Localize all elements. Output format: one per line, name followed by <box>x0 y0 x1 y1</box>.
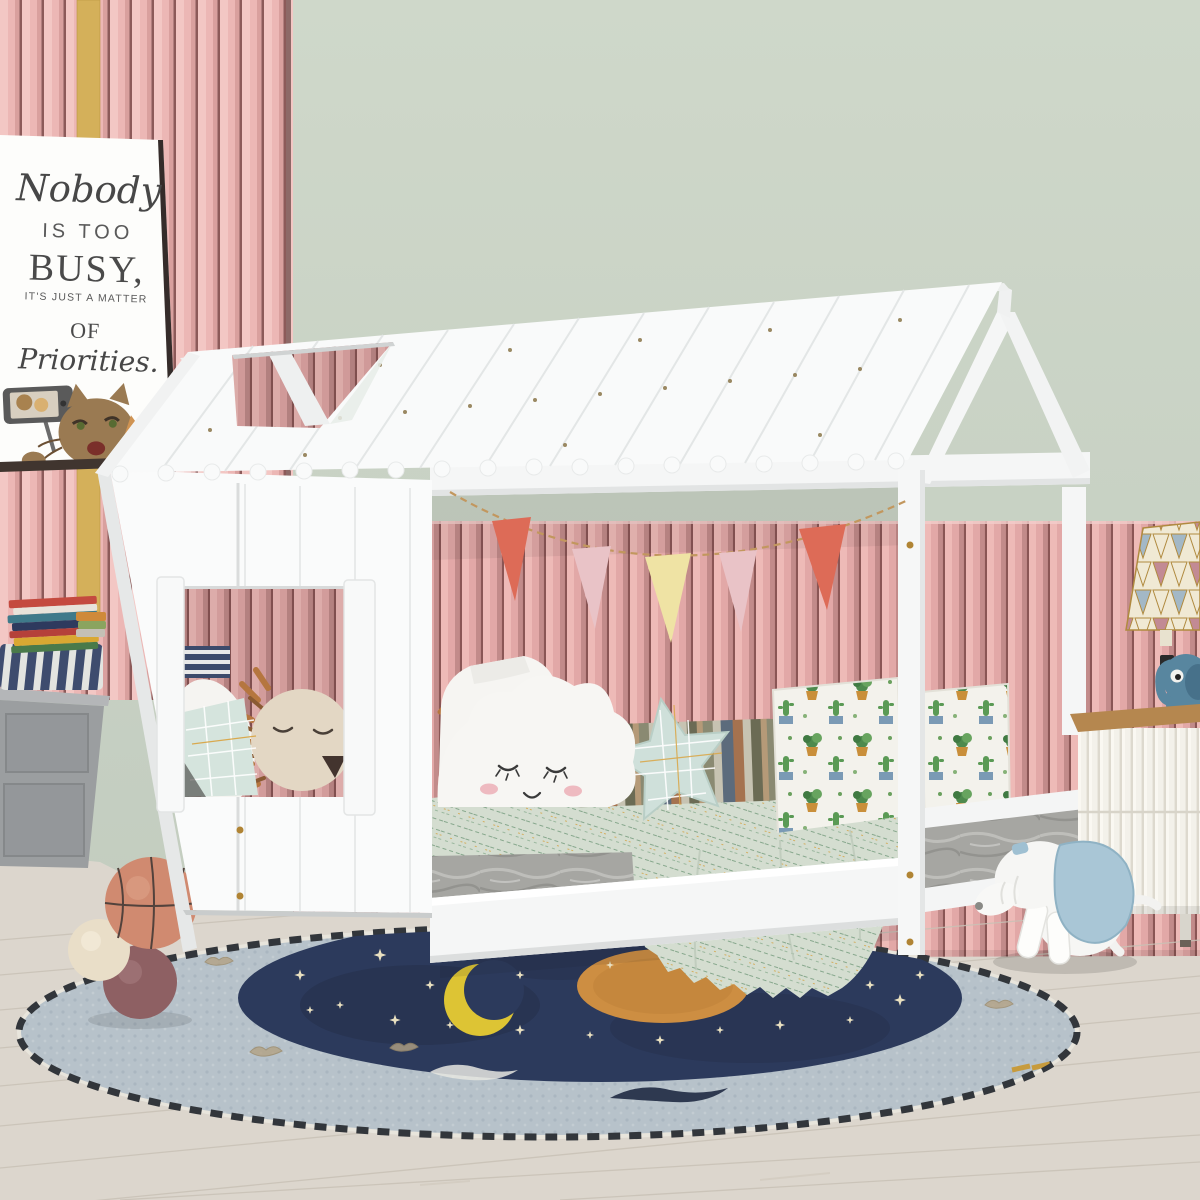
dog-nose <box>975 902 983 910</box>
poster-line-priorities: Priorities. <box>17 342 159 379</box>
poster-line-of: OF <box>70 318 101 344</box>
kids-room-photo: Nobody IS TOO BUSY, IT'S JUST A MATTER O… <box>0 0 1200 1200</box>
cloud-cheek <box>480 784 498 795</box>
window-shutter-left <box>157 577 184 812</box>
front-right-post <box>898 470 925 955</box>
lamp-neck <box>1160 630 1172 646</box>
back-right-post <box>1062 487 1086 735</box>
cloud-cheek <box>564 786 582 797</box>
window-scene <box>159 588 353 832</box>
window-shutter-right <box>344 580 375 815</box>
plant-print-pillow-left <box>773 678 902 838</box>
bench-drawer-panel <box>6 714 88 772</box>
book-stack-small <box>76 612 106 637</box>
bench-drawer-panel <box>4 784 84 856</box>
poster-text: Nobody IS TOO BUSY, IT'S JUST A MATTER O… <box>10 166 163 379</box>
poster-line-istoo: IS TOO <box>42 220 134 244</box>
room-scene: Nobody IS TOO BUSY, IT'S JUST A MATTER O… <box>0 0 1200 1200</box>
house-window <box>157 577 375 832</box>
poster-line-busy: BUSY, <box>28 246 145 291</box>
poster-line-nobody: Nobody <box>15 166 163 213</box>
